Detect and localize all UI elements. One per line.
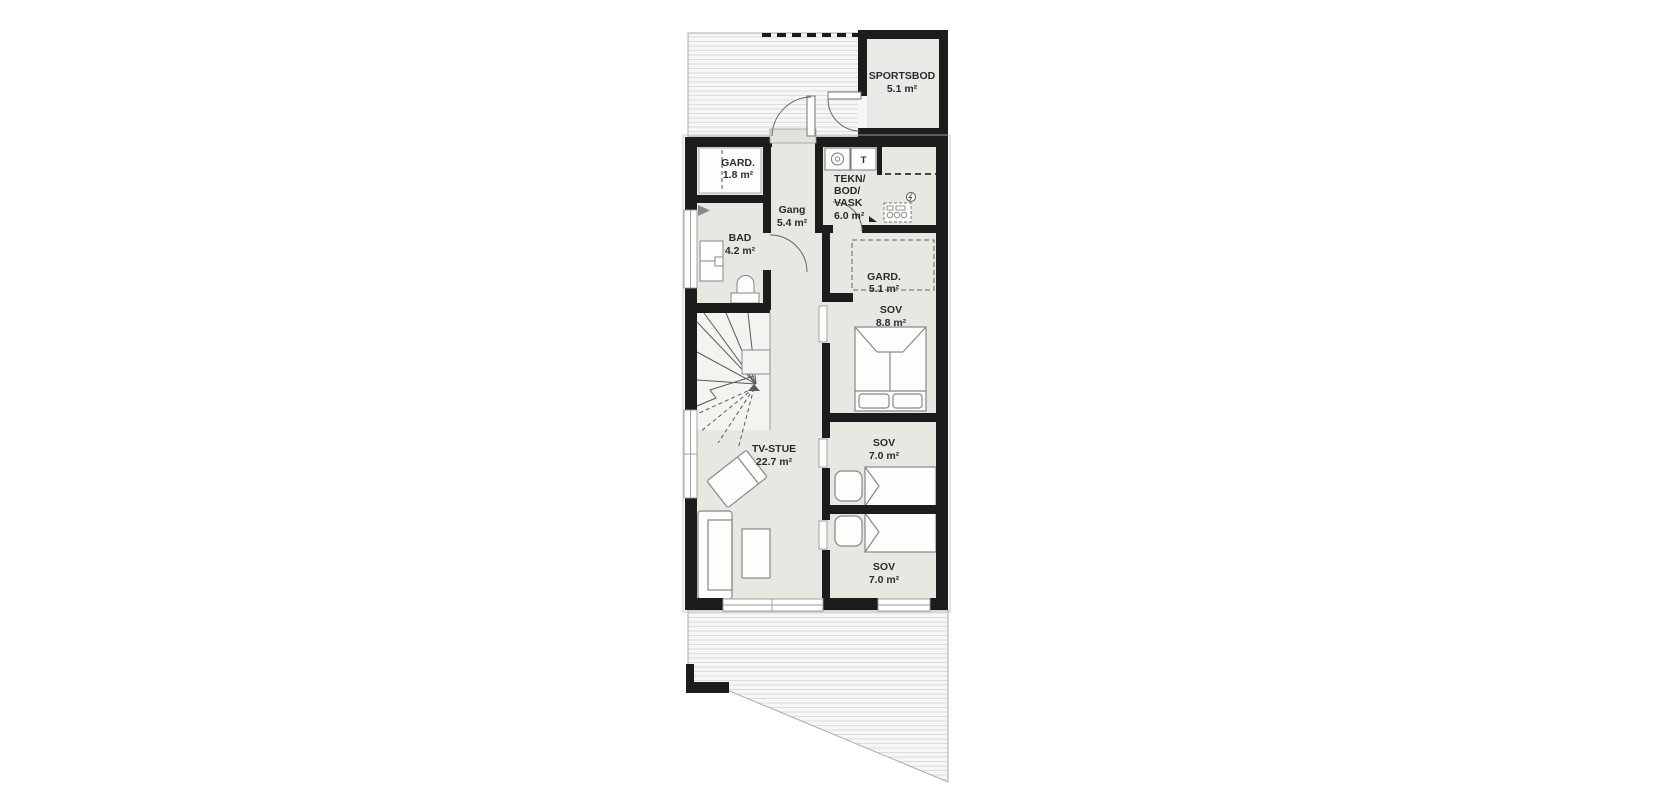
sov-lower-door-leaf (819, 521, 827, 549)
floor-plan-page: T (0, 0, 1670, 800)
gard-entry-area: 1.8 m² (723, 169, 754, 181)
tekn-area: 6.0 m² (834, 210, 865, 222)
bed-sov-lower (835, 513, 936, 552)
label-tv-stue: TV-STUE 22.7 m² (752, 443, 796, 468)
label-sov-mid: SOV 7.0 m² (869, 437, 900, 462)
gard-sov-area: 5.1 m² (869, 283, 900, 295)
floor-plan-svg: T (0, 0, 1670, 800)
tv-stue-name: TV-STUE (752, 443, 796, 455)
toilet-bowl (737, 276, 754, 294)
deck-bottom (686, 610, 948, 782)
label-sov-lower: SOV 7.0 m² (869, 561, 900, 586)
label-bad: BAD 4.2 m² (725, 232, 756, 257)
tekn-line2: BOD/ (834, 185, 860, 197)
window-deck-doors (723, 599, 823, 611)
toilet-tank (731, 293, 759, 303)
gang-area: 5.4 m² (777, 217, 808, 229)
sportsbod-door-leaf (828, 92, 861, 99)
gard-sov-name: GARD. (867, 271, 901, 283)
side-table (742, 529, 770, 578)
label-tekn: TEKN/ BOD/ VASK 6.0 m² (834, 173, 866, 222)
label-gard-entry: GARD. 1.8 m² (721, 157, 755, 181)
electrical-cabinet-icon (884, 203, 911, 222)
tekn-line3: VASK (834, 197, 863, 209)
staircase (697, 313, 770, 449)
entrance-door-leaf (807, 96, 815, 136)
window-tv-stue (684, 410, 697, 498)
sofa (698, 511, 732, 599)
deck-top (688, 33, 860, 137)
sportsbod-name: SPORTSBOD (869, 70, 936, 82)
dryer-label: T (861, 155, 867, 166)
label-gang: Gang 5.4 m² (777, 204, 808, 229)
sov-lower-area: 7.0 m² (869, 574, 900, 586)
sov-main-door-leaf (819, 306, 827, 342)
sov-mid-name: SOV (873, 437, 895, 449)
sportsbod-door-gap (858, 96, 867, 128)
sov-lower-name: SOV (873, 561, 895, 573)
gang-name: Gang (779, 204, 806, 216)
tekn-line1: TEKN/ (834, 173, 866, 185)
window-bad (684, 210, 697, 288)
sov-main-area: 8.8 m² (876, 317, 907, 329)
bed-sov-main (855, 327, 926, 411)
sov-main-name: SOV (880, 304, 902, 316)
sov-mid-area: 7.0 m² (869, 450, 900, 462)
window-sov-lower (878, 599, 930, 611)
gard-entry-name: GARD. (721, 157, 755, 169)
tv-stue-area: 22.7 m² (756, 456, 793, 468)
electric-meter-icon (907, 193, 916, 202)
sportsbod-area: 5.1 m² (887, 83, 918, 95)
label-gard-sov: GARD. 5.1 m² (867, 271, 901, 295)
bed-sov-mid (835, 467, 936, 506)
label-sov-main: SOV 8.8 m² (876, 304, 907, 329)
washing-machine-icon (825, 148, 850, 170)
sov-mid-door-leaf (819, 439, 827, 467)
bad-name: BAD (729, 232, 752, 244)
bad-area: 4.2 m² (725, 245, 756, 257)
